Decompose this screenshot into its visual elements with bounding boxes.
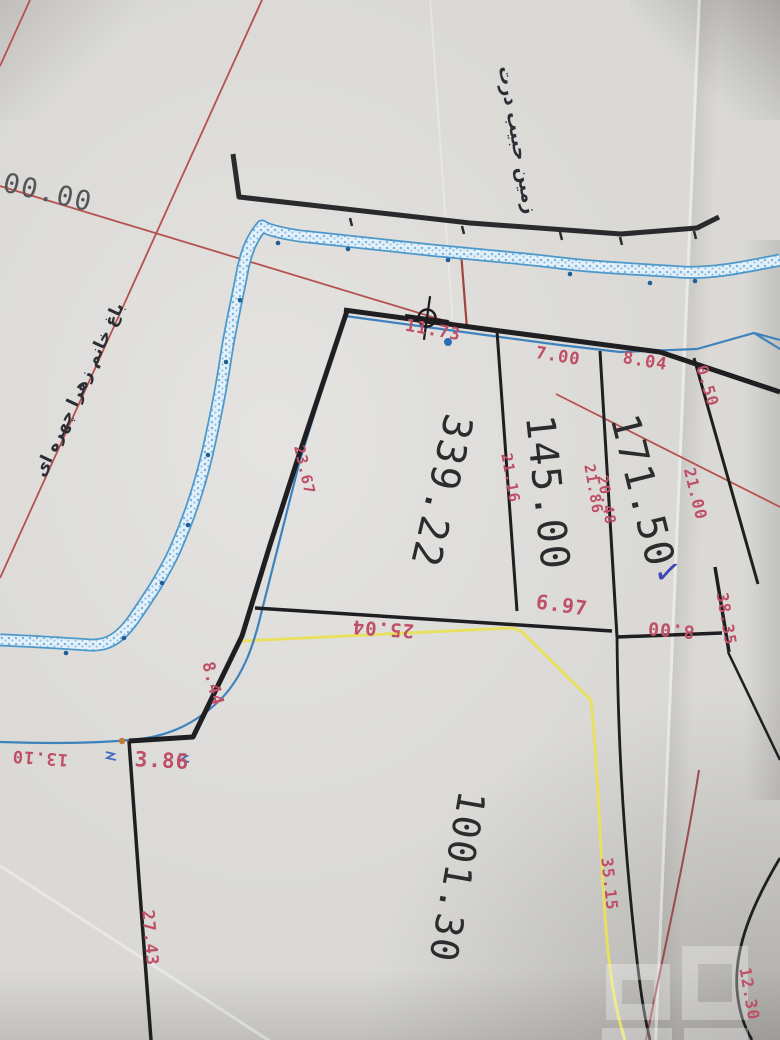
plot-name-left: باغ خانم زهرا چهره ای — [32, 300, 128, 479]
dim-8-44: 8.44 — [198, 660, 225, 708]
ink-checkmark: ✓ — [654, 551, 683, 592]
dim-12-30: 12.30 — [737, 966, 762, 1021]
dim-6-97: 6.97 — [535, 591, 589, 618]
dim-27-43: 27.43 — [138, 909, 160, 966]
dim-35-15: 35.15 — [598, 857, 619, 912]
dim-20-48: 20.48 — [594, 474, 617, 526]
dim-21-00: 21.00 — [681, 466, 709, 521]
dim-21-16: 21.16 — [498, 452, 521, 504]
area-145-00: 145.00 — [519, 413, 575, 573]
plot-name-top: زمین حبیب درت — [495, 65, 540, 216]
dim-25-04: 25.04 — [351, 616, 414, 639]
dim-0-50: 0.50 — [693, 363, 721, 408]
dim-38-35: 38.35 — [714, 591, 739, 646]
map-photo: 00.00زمین حبیب درتباغ خانم زهرا چهره ای1… — [0, 0, 780, 1040]
dim-11-73: 11.73 — [404, 318, 462, 344]
dim-8-04: 8.04 — [621, 350, 668, 374]
map-labels: 00.00زمین حبیب درتباغ خانم زهرا چهره ای1… — [0, 0, 780, 1040]
dim-13-10: 13.10 — [11, 747, 68, 768]
dim-3-86: 3.86 — [134, 749, 190, 773]
area-1001-30: 1001.30 — [423, 788, 491, 966]
edge-dimension-00-00: 00.00 — [0, 170, 95, 217]
dim-23-67: 23.67 — [291, 444, 317, 496]
area-171-50: 171.50 — [604, 410, 681, 572]
area-339-22: 339.22 — [404, 410, 478, 571]
dim-7-00: 7.00 — [534, 345, 581, 369]
dim-8-00: 8.00 — [647, 618, 696, 640]
